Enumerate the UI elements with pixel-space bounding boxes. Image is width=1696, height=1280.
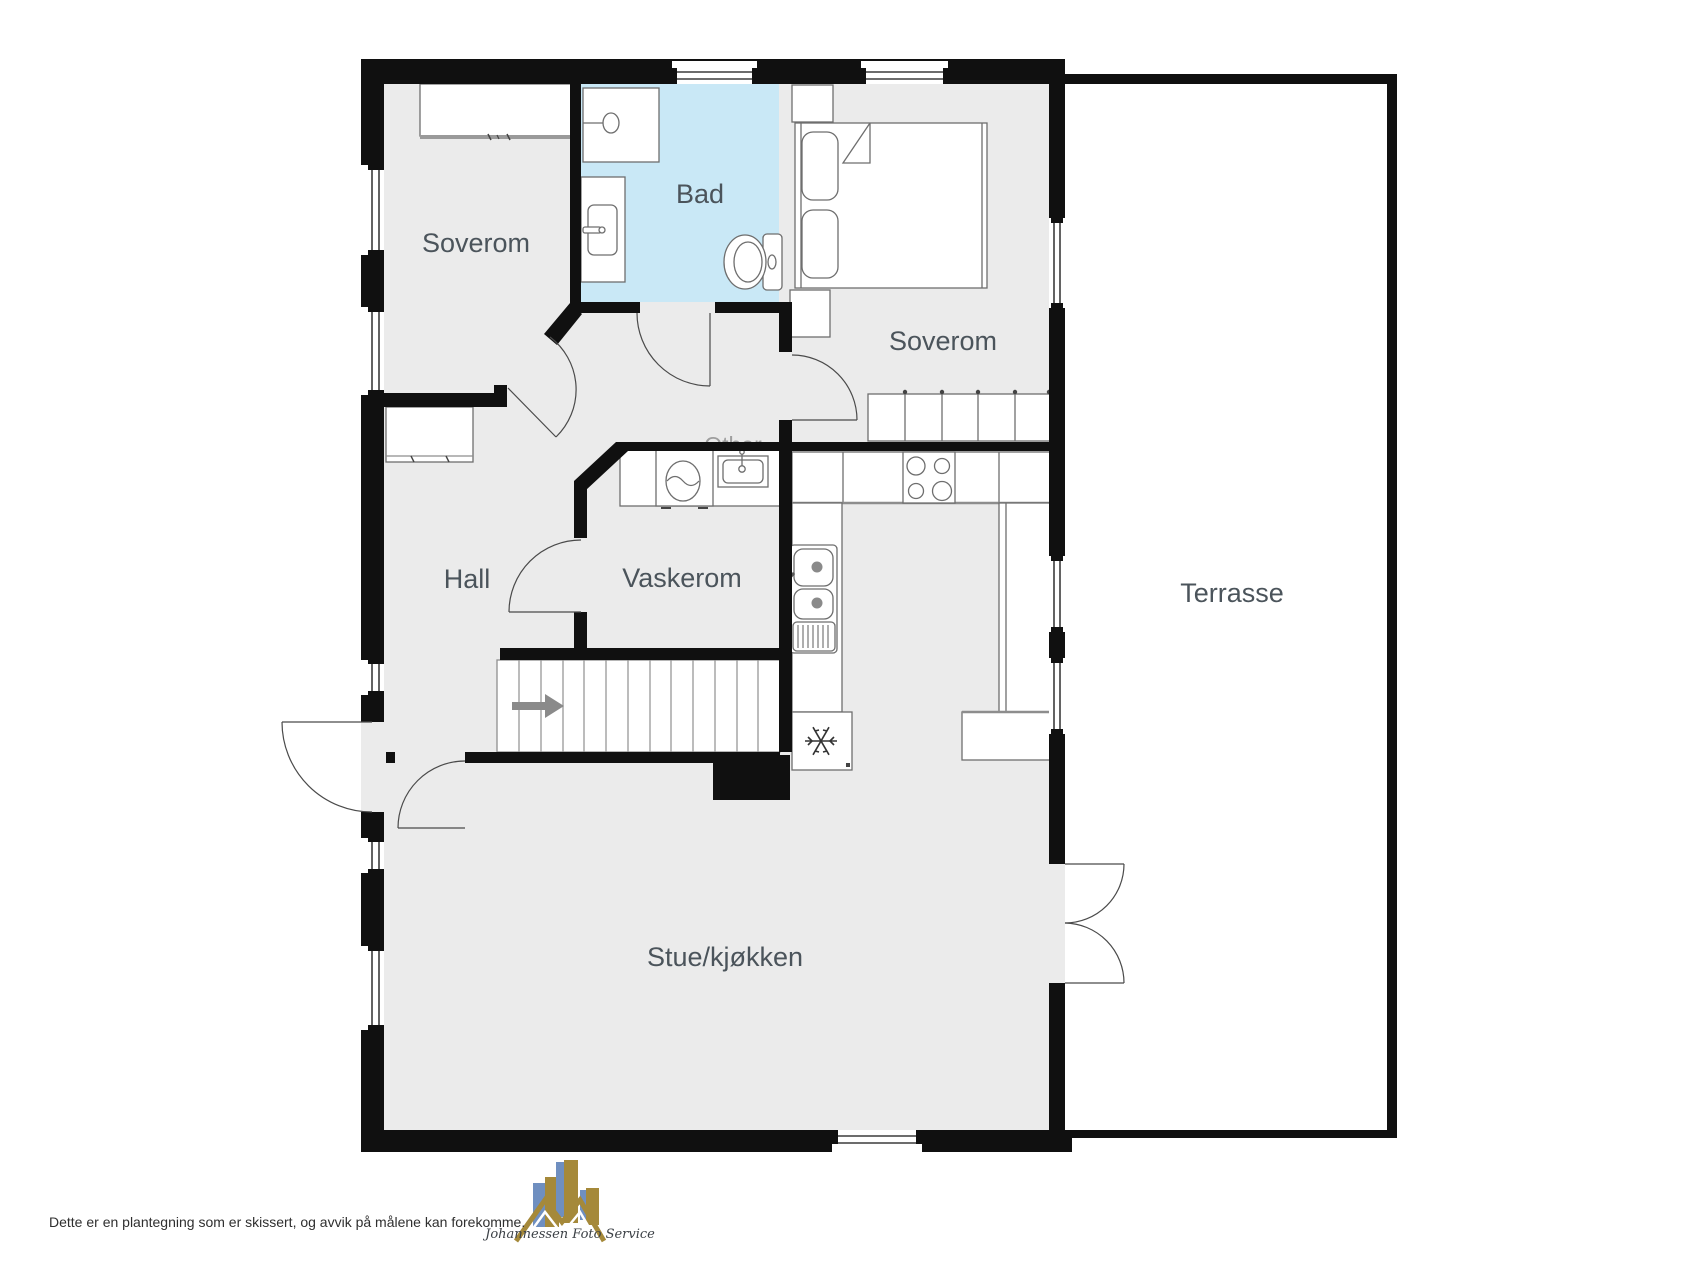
wall-hall-bedroom2-upper — [779, 313, 792, 352]
room-label-bathroom: Bad — [676, 179, 724, 209]
wall-bath-bottom-right — [715, 302, 792, 313]
washing-machine-icon — [656, 450, 713, 508]
window-icon — [1049, 556, 1065, 632]
bedroom2-closet-side — [790, 290, 830, 337]
room-label-laundry: Vaskerom — [622, 563, 742, 593]
room-label-hall: Hall — [444, 564, 491, 594]
wall-hall-bedroom2-lower — [779, 420, 792, 752]
room-label-bedroom2: Soverom — [889, 326, 997, 356]
bedroom2-closet-top — [792, 85, 833, 122]
window-icon — [361, 838, 384, 873]
window-icon — [361, 946, 384, 1030]
door-swing-icon — [282, 722, 372, 812]
toilet-icon — [724, 234, 782, 290]
wall-laundry-left-upper — [574, 481, 587, 538]
wall-stue-door-stub — [386, 752, 395, 763]
window-icon — [1049, 218, 1065, 308]
window-icon — [861, 61, 948, 84]
wardrobe-row — [868, 390, 1052, 441]
shower-icon — [583, 88, 659, 162]
bed-icon — [795, 123, 987, 288]
window-icon — [832, 1130, 922, 1152]
wall-bedroom1-stub — [494, 385, 507, 407]
disclaimer-text: Dette er en plantegning som er skissert,… — [49, 1214, 525, 1230]
entrance-door-gap — [361, 722, 384, 812]
terrace-wall-right — [1387, 74, 1397, 1138]
chimney — [713, 755, 790, 800]
wall-bath-left — [570, 84, 581, 313]
wall-bedroom1-bottom — [384, 393, 494, 407]
floorplan-drawing: Other — [0, 0, 1696, 1280]
stove-icon — [903, 452, 955, 503]
window-icon — [1049, 658, 1065, 734]
kitchen-counter-bottom — [962, 712, 1052, 760]
terrace-door-gap — [1049, 864, 1065, 983]
sink-icon — [581, 177, 625, 282]
window-icon — [361, 165, 384, 255]
terrace-wall-bottom — [1072, 1130, 1397, 1138]
staircase — [497, 660, 780, 752]
window-icon — [361, 307, 384, 395]
room-label-terrace: Terrasse — [1180, 578, 1284, 608]
hall-closet — [386, 407, 473, 462]
window-icon — [361, 660, 384, 695]
terrace-wall-top — [1064, 74, 1397, 84]
room-label-bedroom1: Soverom — [422, 228, 530, 258]
window-icon — [672, 61, 757, 84]
wardrobe-icon — [420, 84, 571, 140]
room-label-living-kitchen: Stue/kjøkken — [647, 942, 803, 972]
wall-bath-bottom-left — [570, 302, 640, 313]
laundry-sink-icon — [718, 450, 768, 487]
wall-kitchen-back — [616, 442, 1050, 451]
wall-bottom — [361, 1130, 1072, 1152]
freezer-snowflake-icon — [792, 712, 852, 770]
wall-stairs-top — [500, 648, 781, 660]
floorplan-page: Other — [0, 0, 1696, 1280]
kitchen-tall-cabinet — [999, 503, 1050, 712]
